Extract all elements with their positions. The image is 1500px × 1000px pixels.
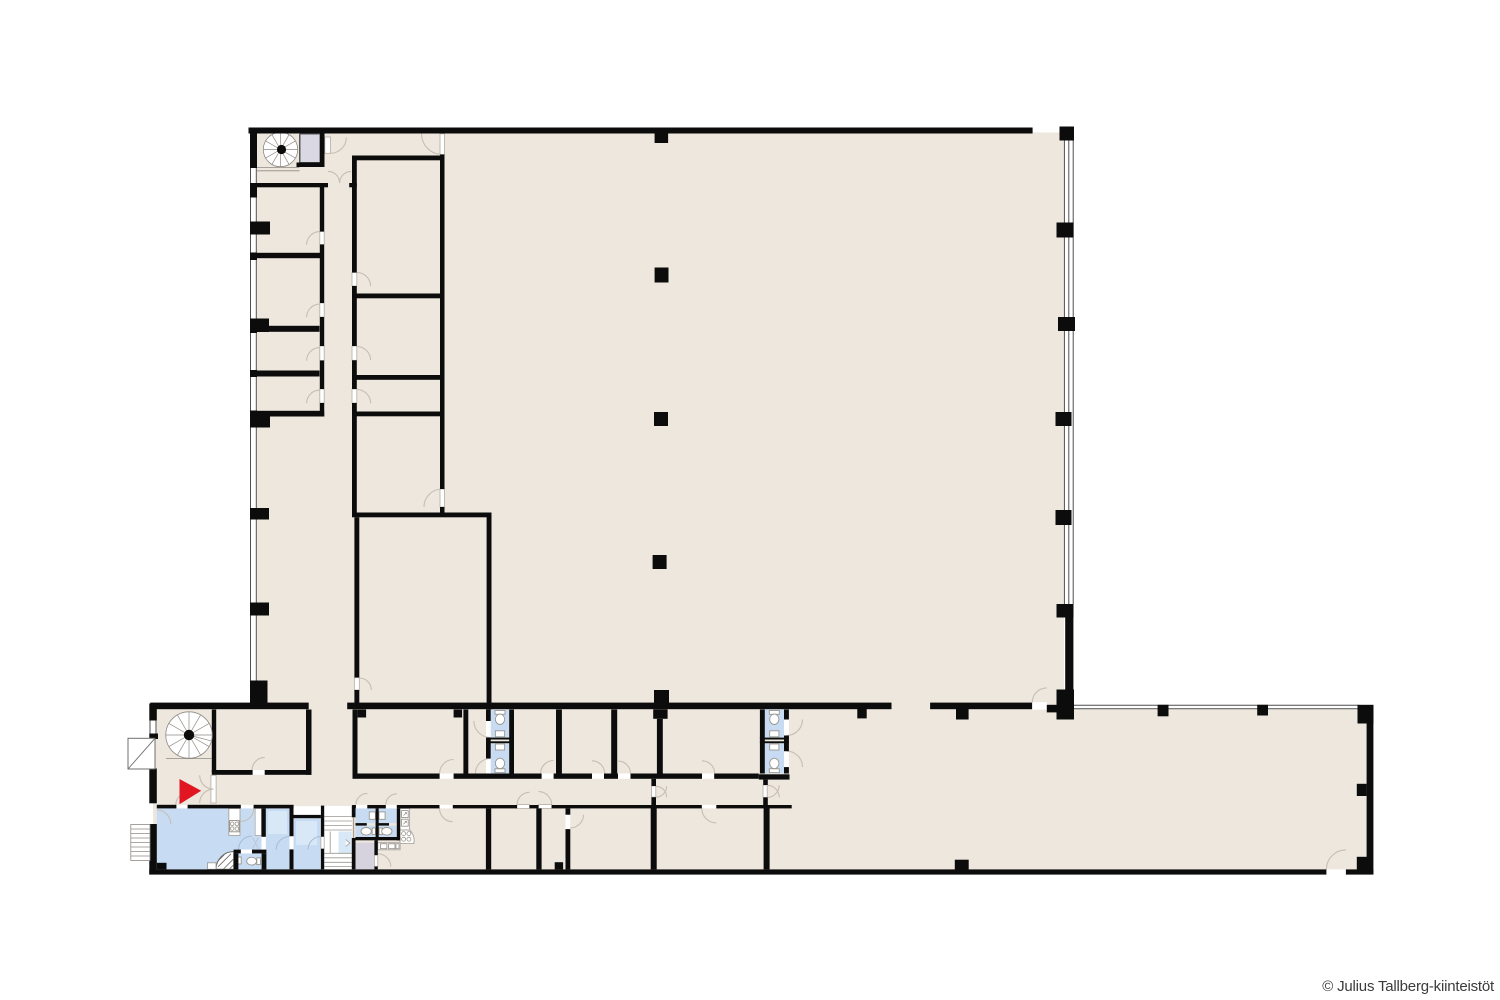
svg-text:© Julius Tallberg-kiinteistöt: © Julius Tallberg-kiinteistöt (1322, 978, 1495, 995)
